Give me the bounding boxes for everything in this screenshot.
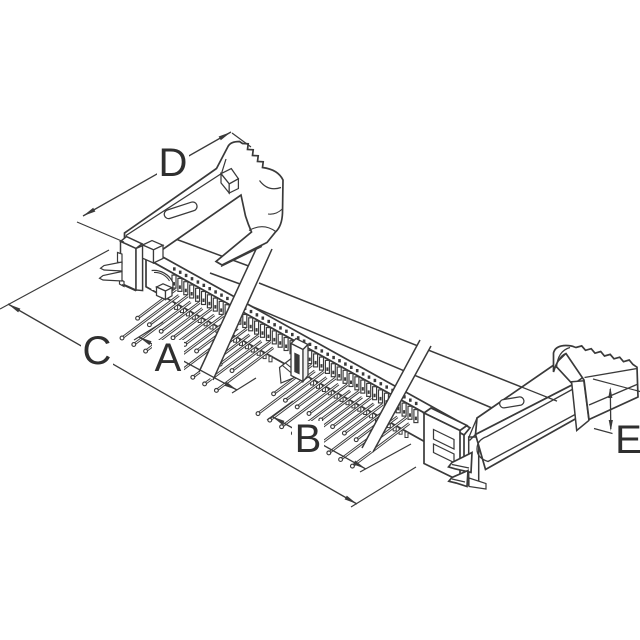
svg-text:D: D — [159, 141, 188, 185]
svg-text:E: E — [615, 418, 640, 462]
svg-text:B: B — [295, 417, 322, 461]
svg-text:A: A — [155, 336, 182, 380]
svg-text:C: C — [83, 329, 112, 373]
